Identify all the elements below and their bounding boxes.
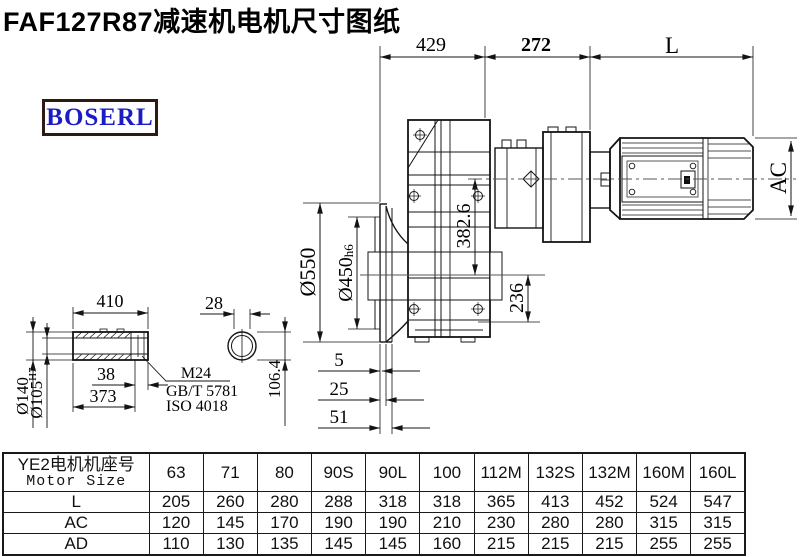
row-label: L — [3, 492, 149, 513]
table-cell: 280 — [528, 513, 582, 534]
table-cell: 215 — [528, 534, 582, 556]
table-col-header: 112M — [474, 453, 528, 492]
row-label: AD — [3, 534, 149, 556]
table-col-header: 160L — [691, 453, 745, 492]
table-col-header: 100 — [420, 453, 474, 492]
table-cell: 190 — [312, 513, 366, 534]
table-cell: 170 — [257, 513, 311, 534]
dim-28-label: 28 — [205, 293, 223, 313]
table-cell: 413 — [528, 492, 582, 513]
hollow-shaft-right-hub — [490, 252, 502, 300]
table-col-header: 90L — [366, 453, 420, 492]
table-cell: 288 — [312, 492, 366, 513]
table-col-header: 132S — [528, 453, 582, 492]
table-cell: 130 — [203, 534, 257, 556]
table-cell: 318 — [366, 492, 420, 513]
dim-272-label: 272 — [521, 34, 551, 56]
adapter-section — [495, 127, 610, 242]
motor-size-table-wrap: YE2电机机座号Motor Size63718090S90L100112M132… — [2, 452, 746, 556]
table-cell: 110 — [149, 534, 203, 556]
table-row: AD110130135145145160215215215255255 — [3, 534, 745, 556]
dim-5-label: 5 — [334, 350, 344, 371]
dim-236-label: 236 — [506, 283, 528, 313]
table-cell: 255 — [637, 534, 691, 556]
table-cell: 190 — [366, 513, 420, 534]
table-cell: 160 — [420, 534, 474, 556]
dim-L-label: L — [665, 33, 679, 58]
table-header-row: YE2电机机座号Motor Size63718090S90L100112M132… — [3, 453, 745, 492]
dim-382-label: 382.6 — [453, 204, 475, 249]
dia-550-label: Ø550 — [295, 248, 320, 297]
table-cell: 280 — [582, 513, 636, 534]
table-cell: 315 — [637, 513, 691, 534]
table-cell: 452 — [582, 492, 636, 513]
top-dimensions: 429 272 L — [380, 33, 753, 202]
table-cell: 280 — [257, 492, 311, 513]
leader-iso-label: ISO 4018 — [166, 398, 228, 415]
table-cell: 365 — [474, 492, 528, 513]
table-col-header: 160M — [637, 453, 691, 492]
table-cell: 120 — [149, 513, 203, 534]
table-cell: 135 — [257, 534, 311, 556]
table-cell: 215 — [582, 534, 636, 556]
dim-38-label: 38 — [97, 364, 115, 384]
motor-size-table: YE2电机机座号Motor Size63718090S90L100112M132… — [2, 452, 746, 556]
hollow-shaft-left-hub — [368, 252, 380, 300]
dim-AC-label: AC — [766, 162, 791, 194]
table-cell: 145 — [312, 534, 366, 556]
table-row: AC120145170190190210230280280315315 — [3, 513, 745, 534]
technical-drawing: 429 272 L — [0, 0, 800, 452]
table-cell: 547 — [691, 492, 745, 513]
table-cell: 315 — [691, 513, 745, 534]
dim-373-label: 373 — [90, 386, 117, 406]
table-cell: 145 — [203, 513, 257, 534]
gearbox-housing — [407, 120, 490, 342]
dim-429-label: 429 — [416, 34, 446, 56]
table-cell: 318 — [420, 492, 474, 513]
motor — [468, 138, 796, 219]
dim-106-label: 106.4 — [265, 359, 284, 398]
table-col-header: 90S — [312, 453, 366, 492]
table-row: L205260280288318318365413452524547 — [3, 492, 745, 513]
dia-450-label: Ø450h6 — [335, 244, 357, 302]
dia-105-label: Ø105H7 — [27, 367, 46, 419]
header-en: Motor Size — [4, 474, 149, 490]
table-header-motor-size: YE2电机机座号Motor Size — [3, 453, 149, 492]
table-cell: 255 — [691, 534, 745, 556]
row-label: AC — [3, 513, 149, 534]
table-col-header: 132M — [582, 453, 636, 492]
table-cell: 524 — [637, 492, 691, 513]
table-cell: 205 — [149, 492, 203, 513]
table-col-header: 63 — [149, 453, 203, 492]
table-cell: 145 — [366, 534, 420, 556]
dim-25-label: 25 — [330, 379, 349, 400]
dim-51-label: 51 — [330, 407, 349, 428]
table-cell: 215 — [474, 534, 528, 556]
table-cell: 230 — [474, 513, 528, 534]
header-cn: YE2电机机座号 — [4, 455, 149, 474]
table-cell: 210 — [420, 513, 474, 534]
hatch-marks — [76, 333, 131, 360]
table-cell: 260 — [203, 492, 257, 513]
drawing-page: FAF127R87减速机电机尺寸图纸 BOSERL 429 272 L — [0, 0, 800, 557]
table-col-header: 80 — [257, 453, 311, 492]
dim-410-label: 410 — [97, 291, 124, 311]
table-col-header: 71 — [203, 453, 257, 492]
leader-m24-label: M24 — [181, 365, 211, 382]
